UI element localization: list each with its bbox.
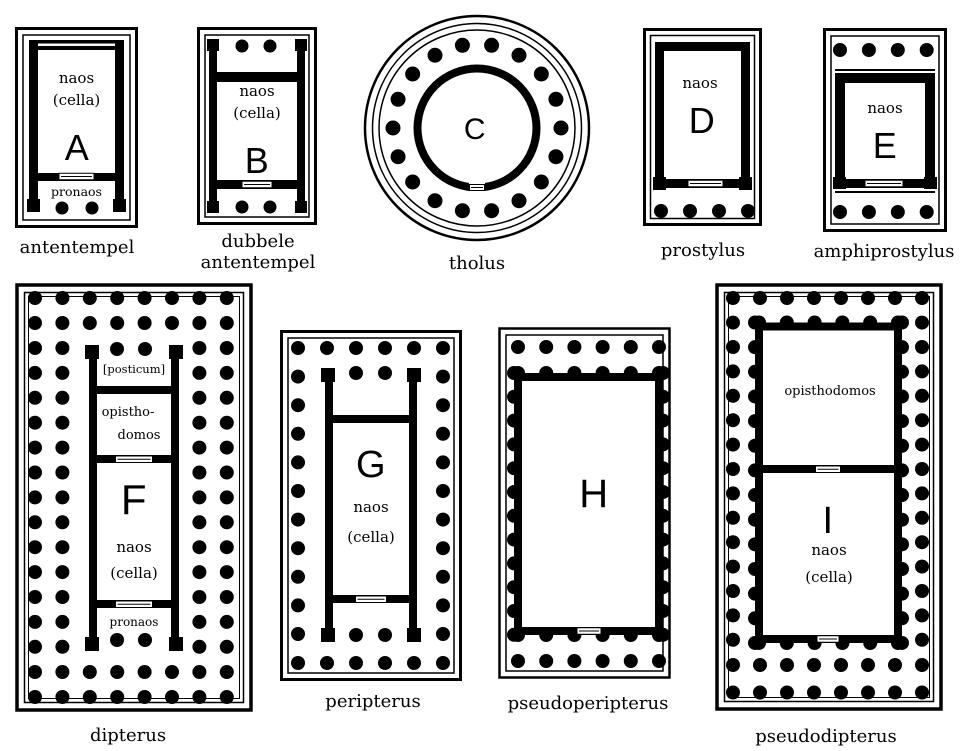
plan-dipterus: [posticum] opistho- domos F naos (cella)…	[15, 283, 253, 712]
tholus-floor-plan: C	[361, 12, 593, 244]
naos-label: naos	[59, 69, 94, 87]
colonnade-rows-bottom	[726, 658, 929, 700]
naos-label: naos	[682, 74, 717, 92]
naos-label: naos	[116, 538, 151, 556]
colonnade-col-left	[291, 370, 305, 641]
plan-letter: C	[464, 113, 486, 146]
caption-tholus: tholus	[449, 253, 505, 274]
naos-label: naos	[811, 541, 846, 559]
antentempel-floor-plan: naos (cella) A pronaos	[15, 27, 138, 228]
caption-prostylus: prostylus	[661, 240, 745, 261]
front-portico-columns	[833, 43, 934, 57]
temple-plans-diagram: naos (cella) A pronaos antentempel	[0, 0, 960, 751]
plan-letter: I	[822, 500, 833, 542]
pronaos-columns	[349, 628, 392, 642]
plan-letter: H	[579, 472, 608, 516]
cella-label: (cella)	[805, 568, 853, 586]
rear-portico-columns	[833, 205, 934, 219]
naos-label: naos	[867, 99, 902, 117]
caption-antentempel: antentempel	[20, 237, 135, 258]
peripterus-floor-plan: G naos (cella)	[280, 330, 462, 681]
plan-dubbele-antentempel: naos (cella) B	[197, 27, 317, 225]
posticum-columns	[110, 342, 152, 356]
cella-label: (cella)	[233, 104, 281, 122]
caption-pseudodipterus: pseudodipterus	[755, 726, 897, 747]
opisthodomos-columns	[349, 366, 392, 380]
plan-amphiprostylus: naos E	[823, 28, 947, 232]
plan-pseudoperipterus: H	[498, 327, 671, 679]
colonnade-col-right	[436, 370, 450, 641]
dipterus-floor-plan: [posticum] opistho- domos F naos (cella)…	[15, 283, 253, 712]
naos-label: naos	[239, 82, 274, 100]
pseudodipterus-floor-plan: opisthodomos I naos (cella)	[715, 283, 943, 711]
amphiprostylus-floor-plan: naos E	[823, 28, 947, 232]
caption-line-2: antentempel	[201, 252, 316, 273]
caption-line-1: dubbele	[201, 231, 316, 252]
plan-letter: B	[245, 140, 270, 181]
colonnade-cols-right	[192, 341, 233, 654]
posticum-columns	[236, 40, 277, 53]
portico-columns	[654, 204, 755, 218]
opisthodomos-label-line1: opistho-	[102, 405, 155, 420]
pronaos-label: pronaos	[110, 615, 159, 629]
pronaos-columns	[110, 633, 152, 647]
pronaos-label: pronaos	[51, 184, 102, 199]
caption-amphiprostylus: amphiprostylus	[814, 241, 955, 262]
opisthodomos-label: opisthodomos	[784, 384, 875, 399]
stylobate-line-bottom	[835, 191, 935, 193]
caption-dubbele-antentempel: dubbele antentempel	[201, 231, 316, 273]
posticum-label: [posticum]	[103, 362, 165, 376]
plan-peripterus: G naos (cella)	[280, 330, 462, 681]
plan-prostylus: naos D	[643, 28, 762, 226]
naos-label: naos	[353, 498, 388, 516]
colonnade-row-bottom	[291, 656, 450, 670]
colonnade-col-right	[915, 316, 929, 647]
opisthodomos-label-line2: domos	[118, 428, 161, 443]
portico-columns-top	[511, 340, 666, 354]
cella-label: (cella)	[110, 564, 158, 582]
prostylus-floor-plan: naos D	[643, 28, 762, 226]
stylobate-line-top	[835, 69, 935, 71]
caption-peripterus: peripterus	[325, 691, 420, 712]
portico-columns-bottom	[511, 654, 666, 668]
cella-label: (cella)	[347, 528, 395, 546]
inner-frame	[205, 35, 309, 217]
plan-letter: F	[121, 476, 147, 523]
plan-pseudodipterus: opisthodomos I naos (cella)	[715, 283, 943, 711]
plan-antentempel: naos (cella) A pronaos	[15, 27, 138, 228]
pronaos-columns	[236, 201, 277, 214]
caption-pseudoperipterus: pseudoperipterus	[508, 693, 669, 714]
plan-letter: G	[356, 444, 386, 486]
caption-dipterus: dipterus	[90, 725, 166, 746]
plan-letter: D	[689, 100, 716, 141]
colonnade-cols-left	[28, 341, 69, 654]
pronaos-columns	[56, 202, 99, 215]
dubbele-antentempel-floor-plan: naos (cella) B	[197, 27, 317, 225]
colonnade-row-top	[291, 341, 450, 355]
cella-wall	[759, 327, 898, 640]
plan-letter: E	[873, 125, 898, 166]
plan-letter: A	[65, 127, 90, 168]
plan-tholus: C	[361, 12, 593, 244]
pseudoperipterus-floor-plan: H	[498, 327, 671, 679]
cella-label: (cella)	[53, 91, 101, 109]
